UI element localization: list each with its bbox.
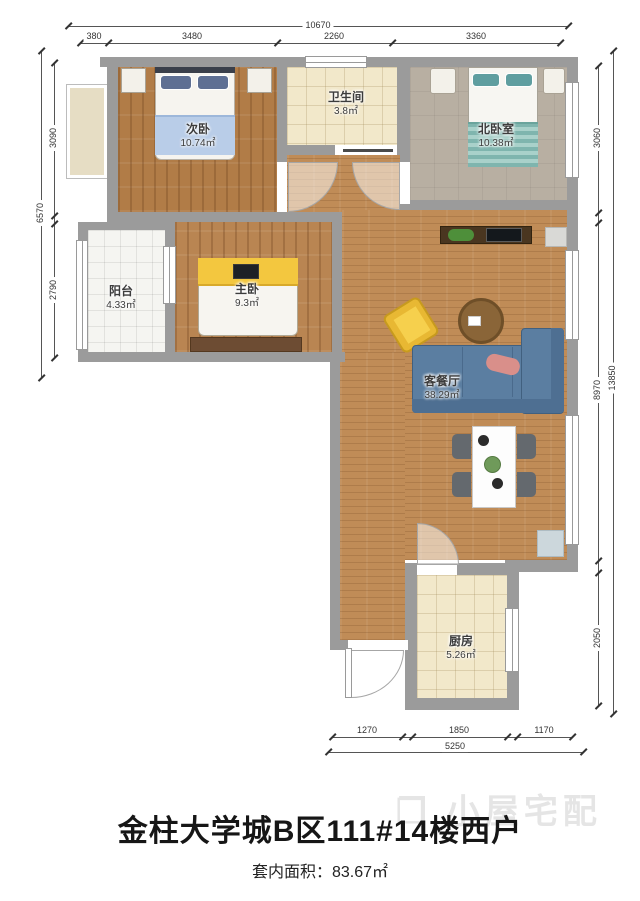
dim-right-seg-0: 3060 <box>593 125 603 151</box>
master-bedroom-tv <box>233 264 259 279</box>
side-cabinet <box>537 530 564 557</box>
dim-top-seg-3: 3360 <box>463 32 489 42</box>
dim-bottom-seg-1: 1850 <box>446 726 472 736</box>
room-area: 3.8㎡ <box>328 105 364 119</box>
wall-north-left <box>400 57 410 162</box>
dining-chair-2 <box>452 472 471 497</box>
dim-bottom-overall: 5250 <box>442 742 468 752</box>
label-kitchen: 厨房 5.26㎡ <box>446 633 475 663</box>
dining-chair-3 <box>517 434 536 459</box>
balcony-sliding-door <box>163 246 176 304</box>
coffee-table-cup <box>468 316 481 326</box>
room-area: 10.74㎡ <box>180 137 215 151</box>
secondary-bedroom-nightstand-right <box>247 68 272 93</box>
bathroom-window <box>305 56 367 68</box>
label-living-dining: 客餐厅 38.29㎡ <box>424 373 460 403</box>
dining-plant <box>484 456 501 473</box>
dim-left-seg-0: 3090 <box>49 125 59 151</box>
room-area: 10.38㎡ <box>478 137 514 151</box>
dim-top-overall: 10670 <box>302 21 333 31</box>
dining-chair-4 <box>517 472 536 497</box>
inner-area-label: 套内面积：83.67㎡ <box>0 858 640 882</box>
floor-plan-page: ❐ 小屋宅配 <box>0 0 640 901</box>
bathroom-door-leaf <box>343 149 393 152</box>
north-bedroom-window <box>565 82 579 178</box>
wall-corridor-left <box>330 352 340 650</box>
console-plant <box>448 229 474 241</box>
wall-kitchen-left <box>405 567 417 710</box>
dim-bottom-seg-2: 1170 <box>531 726 556 736</box>
kitchen-door-opening <box>417 565 457 575</box>
wall-kitchen-bottom <box>405 698 519 710</box>
wall-row-mid <box>107 212 342 222</box>
dim-top-seg-0: 380 <box>83 32 104 42</box>
dim-bottom-seg-0: 1270 <box>354 726 380 736</box>
living-window-2 <box>565 415 579 545</box>
north-bedroom-pillow-right <box>505 73 533 87</box>
wall-secondary-right <box>277 57 287 162</box>
page-title: 金柱大学城B区111#14楼西户 <box>0 806 640 850</box>
dining-plate-2 <box>492 478 503 489</box>
corridor-floor <box>340 352 405 640</box>
entry-stool <box>545 227 567 247</box>
room-area: 38.29㎡ <box>424 389 460 403</box>
wall-mid-bottom <box>78 352 345 362</box>
dim-top-seg-2: 2260 <box>321 32 347 42</box>
wall-master-right <box>332 222 342 362</box>
dining-plate-1 <box>478 435 489 446</box>
wall-north-bottom <box>400 200 578 210</box>
room-name: 主卧 <box>235 281 259 297</box>
dim-top-seg-1: 3480 <box>179 32 205 42</box>
entry-door-arc <box>351 650 404 698</box>
label-balcony: 阳台 4.33㎡ <box>106 283 135 313</box>
wall-bath-bottom <box>287 145 335 155</box>
tv-screen <box>486 228 522 242</box>
secondary-bedroom-door-opening <box>277 162 287 212</box>
coffee-table <box>458 298 504 344</box>
bay-window <box>67 85 107 178</box>
north-bedroom-nightstand-right <box>543 68 565 94</box>
room-area: 9.3㎡ <box>235 297 259 311</box>
dining-chair-1 <box>452 434 471 459</box>
secondary-bedroom-nightstand-left <box>121 68 146 93</box>
room-name: 次卧 <box>180 121 215 137</box>
room-area: 4.33㎡ <box>106 299 135 313</box>
room-name: 北卧室 <box>478 121 514 137</box>
label-master-bedroom: 主卧 9.3㎡ <box>235 281 259 311</box>
room-name: 阳台 <box>106 283 135 299</box>
entry-door-leaf <box>345 648 352 698</box>
secondary-bedroom-pillow-left <box>160 75 192 90</box>
sofa-seam-1 <box>462 347 463 397</box>
north-bedroom-pillow-left <box>472 73 500 87</box>
dim-left-seg-1: 2790 <box>49 277 59 303</box>
dim-left-overall: 6570 <box>36 200 46 226</box>
dim-right-seg-2: 2050 <box>593 625 603 651</box>
wall-balcony-top <box>78 222 170 230</box>
living-window-1 <box>565 250 579 340</box>
room-area: 5.26㎡ <box>446 649 475 663</box>
dim-right-overall: 13850 <box>608 362 618 393</box>
secondary-bedroom-pillow-right <box>197 75 229 90</box>
label-north-bedroom: 北卧室 10.38㎡ <box>478 121 514 151</box>
master-bedroom-wardrobe <box>190 337 302 352</box>
room-name: 厨房 <box>446 633 475 649</box>
sofa-backrest-right <box>551 328 564 413</box>
label-secondary-bedroom: 次卧 10.74㎡ <box>180 121 215 151</box>
north-bedroom-nightstand-left <box>430 68 456 94</box>
secondary-bedroom-headboard <box>155 67 235 73</box>
wall-left-upper <box>107 57 118 222</box>
kitchen-window <box>505 608 519 672</box>
label-bathroom: 卫生间 3.8㎡ <box>328 89 364 119</box>
room-name: 客餐厅 <box>424 373 460 389</box>
dim-right-seg-1: 8970 <box>593 377 603 403</box>
north-bedroom-door-opening <box>400 162 410 204</box>
balcony-window <box>76 240 88 350</box>
entry-door-opening <box>348 640 408 650</box>
room-name: 卫生间 <box>328 89 364 105</box>
